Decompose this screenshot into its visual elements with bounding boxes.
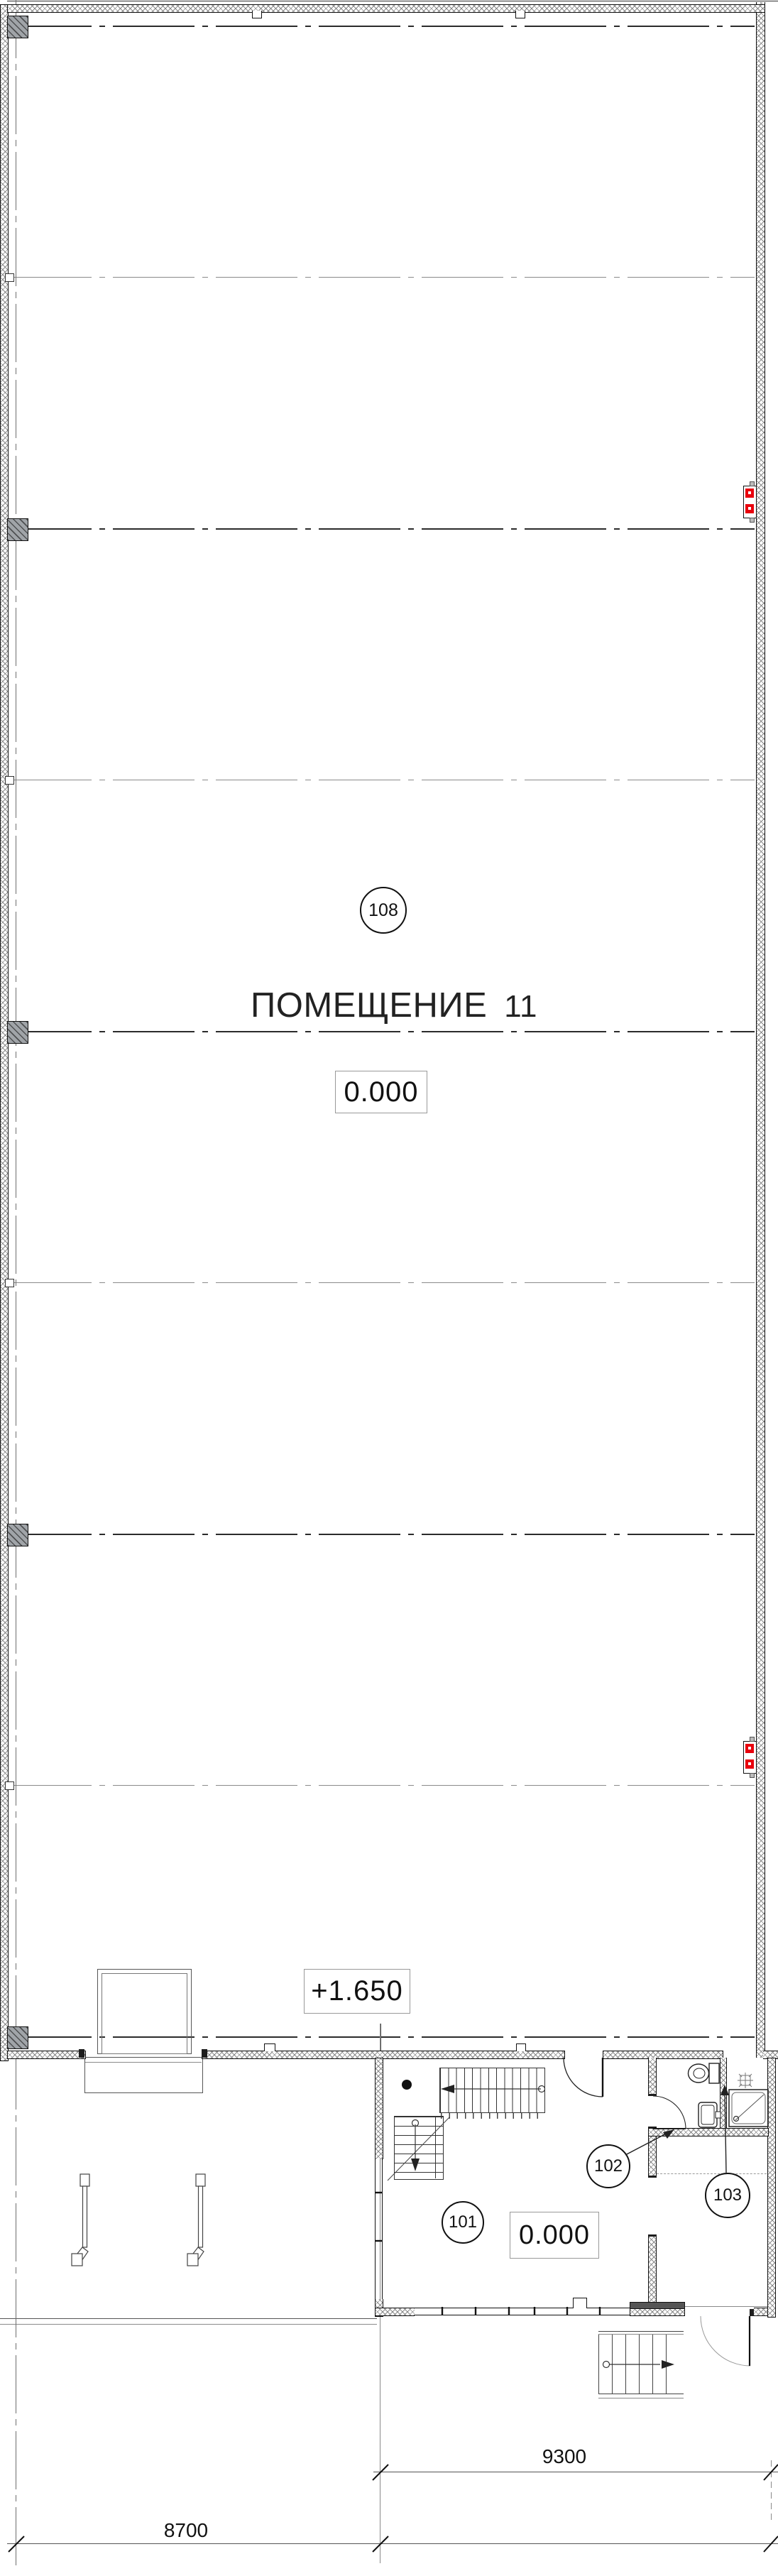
window-sill-notch-icon — [573, 2298, 587, 2308]
entry-stair-rail — [598, 2398, 684, 2398]
annex-bottom-wall-seg1 — [375, 2308, 415, 2316]
partition-102-103 — [720, 2058, 727, 2128]
right-wall — [756, 2, 765, 2058]
stair-column-dot-icon — [402, 2080, 412, 2090]
wall-bracket-icon — [5, 1279, 14, 1287]
exit-door-jamb — [750, 2309, 754, 2316]
dock-apron-edge — [0, 2318, 377, 2319]
level-box-hall: 0.000 — [335, 1071, 427, 1113]
sink-icon — [698, 2102, 721, 2127]
partition-101-102-upper — [648, 2058, 657, 2096]
hall-bottom-wall-seg3 — [603, 2051, 723, 2059]
level-box-mezzanine: +1.650 — [304, 1969, 410, 2014]
stair-upper-flight — [439, 2068, 545, 2113]
hall-title: ПОМЕЩЕНИЕ 11 — [234, 986, 554, 1025]
room-tag-101: 101 — [442, 2201, 484, 2244]
entry-stair-rail — [598, 2394, 684, 2394]
column-icon — [7, 2026, 28, 2049]
door-exit — [701, 2316, 750, 2366]
dimension-line-9300 — [373, 2472, 778, 2472]
door-101-102 — [653, 2096, 686, 2129]
entry-stair-treads — [598, 2335, 669, 2394]
dock-gate-jamb — [202, 2049, 207, 2058]
fire-hose-cabinet-icon — [743, 486, 757, 518]
annex-right-wall — [767, 2058, 776, 2318]
level-box-101: 0.000 — [510, 2212, 599, 2259]
room-tag-102: 102 — [586, 2144, 630, 2188]
grid-line-row2 — [10, 277, 755, 278]
grid-line-row8 — [10, 1785, 755, 1786]
room-tag-108: 108 — [360, 887, 407, 934]
stair-lower-flight — [394, 2116, 444, 2180]
exit-opening-head-line — [684, 2306, 767, 2307]
partition-101-102-lower — [648, 2237, 657, 2303]
entry-stair-rail — [598, 2331, 684, 2332]
annex-bottom-window-band — [414, 2308, 630, 2315]
hall-title-name: ПОМЕЩЕНИЕ — [251, 986, 487, 1025]
linework-overlay — [0, 0, 778, 2576]
stair-tread-ticks — [441, 2113, 544, 2119]
fire-hose-cabinet-icon — [743, 1741, 757, 1774]
dock-gate-jamb — [79, 2049, 84, 2058]
wall-notch-icon — [264, 2043, 275, 2051]
room-tag-103: 103 — [705, 2173, 750, 2218]
wall-notch-icon — [516, 2043, 526, 2051]
wall-bracket-icon — [5, 776, 14, 785]
dock-apron-edge2 — [0, 2324, 377, 2325]
annex-bottom-wall-seg3 — [754, 2308, 768, 2316]
grid-line-row5 — [10, 1031, 755, 1032]
column-icon — [7, 1021, 28, 1044]
wall-notch-icon — [252, 11, 262, 18]
dock-pit-inner — [102, 1973, 187, 2054]
annex-left-wall-upper — [375, 2058, 383, 2159]
grid-line-row3 — [10, 528, 755, 530]
column-icon — [7, 16, 28, 38]
grid-axis-vertical-left — [16, 0, 16, 2570]
mezzanine-edge-dashed — [657, 2173, 770, 2174]
top-wall-outer-edge — [7, 1, 778, 1]
grid-line-row4 — [10, 780, 755, 780]
ceiling-light-icon — [738, 2073, 753, 2088]
wall-bracket-icon — [5, 1781, 14, 1790]
stair-stringer-line — [435, 2116, 436, 2178]
partition-base-bar — [630, 2302, 685, 2309]
annex-left-window-band — [375, 2159, 383, 2299]
dock-bumper-icon — [187, 2174, 205, 2266]
partition-102-horizontal — [648, 2128, 769, 2136]
partition-cap — [648, 2127, 657, 2129]
dim-9300: 9300 — [493, 2445, 635, 2468]
column-icon — [7, 1524, 28, 1546]
partition-cap — [648, 2176, 657, 2178]
hall-bottom-wall-seg1 — [7, 2051, 86, 2059]
grid-line-row1 — [10, 26, 755, 27]
door-hall-101 — [564, 2058, 603, 2097]
partition-cap — [648, 2094, 657, 2096]
partition-cap — [648, 2234, 657, 2237]
toilet-icon — [689, 2063, 720, 2083]
wall-bracket-icon — [5, 273, 14, 282]
shower-tray-icon — [729, 2090, 768, 2127]
top-wall — [7, 4, 765, 13]
dock-bumper-icon — [72, 2174, 89, 2266]
column-icon — [7, 518, 28, 541]
dock-recess — [84, 2057, 203, 2093]
dimension-line-8700 — [7, 2543, 778, 2544]
dim-8700: 8700 — [115, 2519, 257, 2542]
hall-bottom-wall-seg2 — [202, 2051, 565, 2059]
floor-plan-canvas: 108 ПОМЕЩЕНИЕ 11 0.000 +1.650 0.000 101 … — [0, 0, 778, 2576]
grid-axis-vertical-right — [771, 2460, 772, 2521]
wall-notch-icon — [515, 11, 525, 18]
grid-line-row6 — [10, 1282, 755, 1283]
grid-line-row7 — [10, 1534, 755, 1535]
hall-title-number: 11 — [504, 989, 537, 1025]
